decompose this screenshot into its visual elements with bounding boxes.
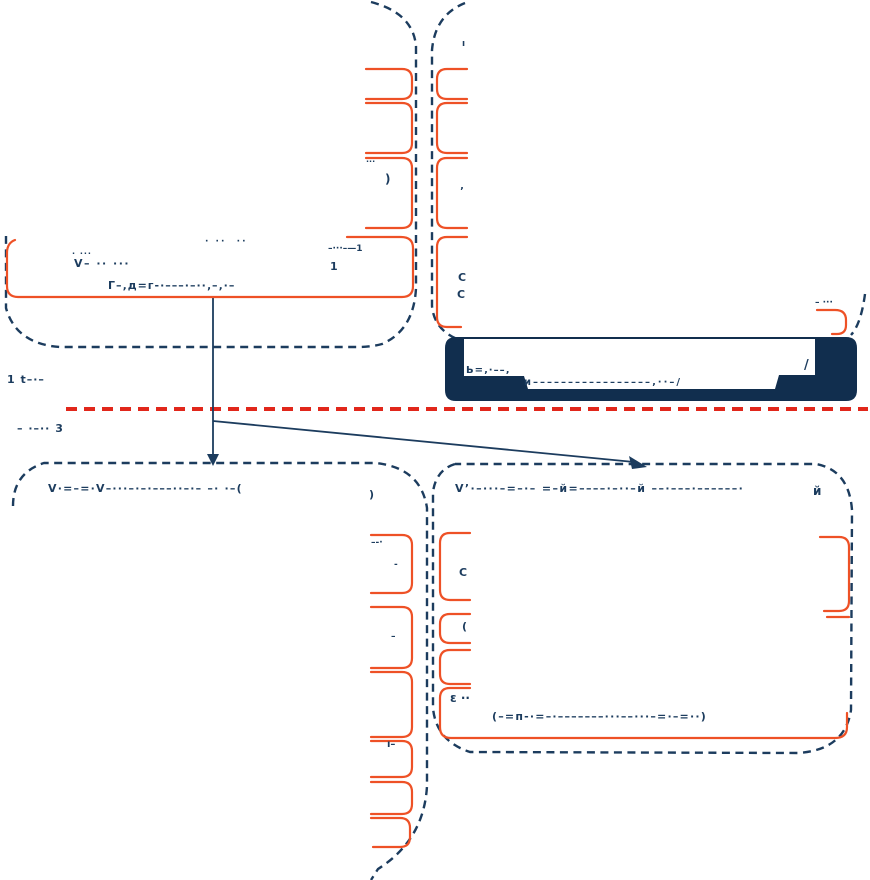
tray-text-fragment-1: Ь=‚·––‚ [466, 366, 510, 376]
text-fragment-label-left-2: – ·–·· 3 [17, 423, 64, 434]
arrow-diagonal-head [629, 456, 647, 469]
text-fragment-bottom-box-line: (–=п-·=–·–––––––···––···–=·–=··) [492, 711, 707, 722]
text-fragment: C [458, 272, 466, 283]
bottom-left-container-border [13, 463, 427, 880]
text-fragment: ··· [366, 158, 375, 166]
text-fragment: C [459, 567, 467, 578]
tray-text-fragment-3: / [804, 359, 809, 372]
top-right-container-border-right [851, 294, 865, 335]
text-fragment: – [391, 633, 396, 642]
text-fragment: –···–—1 [328, 245, 363, 254]
orange-cap-c6 [371, 818, 410, 847]
text-fragment: ε ·· [450, 692, 470, 704]
text-fragment: · ·· ·· [205, 238, 248, 247]
text-fragment: 1 [330, 261, 338, 272]
orange-cap-a2 [366, 103, 412, 153]
text-fragment: –-· [371, 539, 383, 548]
text-fragment: ( [462, 621, 467, 632]
text-fragment: ı– [387, 740, 395, 750]
text-fragment: ı [462, 40, 465, 49]
orange-cap-c5 [371, 782, 412, 814]
text-fragment: ‚ [460, 182, 464, 192]
orange-cap-b1 [437, 69, 467, 99]
text-fragment-bottom-right-title: V’·–···–=–·– =–й=––––·–··–й ––·–––·–––––… [455, 483, 744, 494]
diagram-page: · ·· ·· · ··· V– ·· ··· Г–‚д=г-·–––·–··‚… [0, 0, 870, 880]
text-fragment: V– ·· ··· [74, 258, 130, 269]
text-fragment: Г–‚д=г-·–––·–··‚–‚·– [108, 280, 235, 291]
orange-cap-b2 [437, 103, 467, 153]
diagram-canvas [0, 0, 870, 880]
orange-cap-c3 [371, 672, 412, 737]
orange-cap-a3 [366, 158, 412, 228]
orange-cap-a1 [366, 69, 412, 99]
text-fragment: й [813, 485, 821, 497]
orange-cap-e1 [820, 537, 849, 611]
orange-cap-b3 [437, 158, 467, 228]
text-fragment: – ··· [815, 299, 833, 308]
orange-cap-d3 [440, 650, 470, 684]
top-left-container-border [6, 2, 416, 347]
text-fragment: ) [369, 489, 374, 500]
orange-cap-tray-right [817, 310, 846, 334]
arrow-diagonal-line [213, 421, 634, 462]
text-fragment-bottom-left-title: V·=–=·V–···–·–·–––··–·– –· ·–( [48, 483, 243, 494]
text-fragment-label-left-1: 1 t–·– [7, 374, 45, 385]
tray-text-fragment-2: и–––––––––––––––––‚··–/ [524, 378, 682, 388]
text-fragment: - [394, 561, 398, 570]
text-fragment: C [457, 289, 465, 300]
text-fragment: ) [385, 173, 390, 185]
